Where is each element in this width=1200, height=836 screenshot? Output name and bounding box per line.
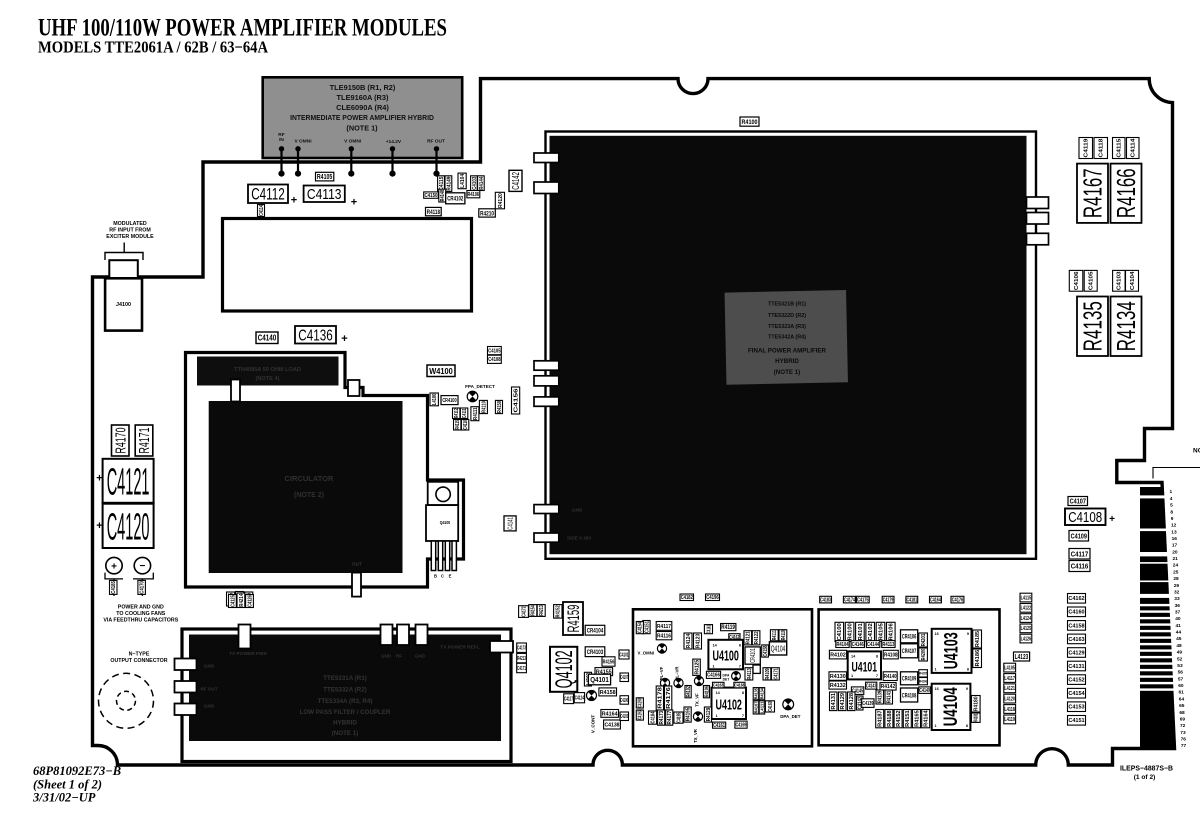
svg-text:C4116: C4116 — [1071, 562, 1089, 571]
svg-text:1: 1 — [851, 674, 853, 678]
svg-text:C4162: C4162 — [1068, 596, 1084, 602]
svg-text:RF: RF — [396, 654, 402, 659]
svg-text:(NOTE 1): (NOTE 1) — [332, 730, 358, 737]
svg-text:C4101: C4101 — [620, 652, 629, 658]
svg-text:C4193: C4193 — [638, 710, 644, 719]
svg-text:GND: GND — [415, 654, 426, 659]
svg-text:R4109: R4109 — [765, 668, 771, 679]
svg-text:C4114: C4114 — [259, 204, 265, 215]
svg-text:RF INPUT FROM: RF INPUT FROM — [109, 228, 151, 234]
svg-text:R4113: R4113 — [747, 668, 753, 679]
svg-text:C4142: C4142 — [511, 172, 522, 190]
svg-text:72: 72 — [1180, 723, 1186, 729]
svg-text:R4111: R4111 — [772, 630, 778, 640]
svg-text:C4119: C4119 — [1084, 139, 1090, 158]
svg-text:C4182: C4182 — [681, 595, 693, 601]
svg-text:R4178: R4178 — [658, 687, 664, 709]
svg-text:R4130: R4130 — [830, 674, 846, 680]
svg-text:R4166: R4166 — [1111, 168, 1141, 218]
svg-text:R4112: R4112 — [454, 408, 460, 418]
svg-text:R4170: R4170 — [113, 428, 129, 454]
svg-text:8: 8 — [739, 644, 741, 648]
svg-text:13: 13 — [1171, 529, 1177, 535]
svg-text:R4116: R4116 — [657, 634, 671, 640]
svg-text:R4195: R4195 — [686, 708, 692, 722]
svg-text:C4125: C4125 — [230, 595, 236, 607]
svg-text:R4150: R4150 — [497, 401, 503, 413]
svg-text:R4200: R4200 — [921, 649, 927, 661]
svg-text:POWER AND GND: POWER AND GND — [118, 604, 164, 610]
svg-text:+: + — [341, 333, 347, 345]
svg-text:VIA FEEDTHRU CAPACITORS: VIA FEEDTHRU CAPACITORS — [103, 618, 178, 624]
svg-text:C4179: C4179 — [883, 598, 894, 604]
svg-text:61: 61 — [1179, 690, 1185, 696]
svg-text:56: 56 — [1178, 670, 1184, 676]
svg-text:R4134: R4134 — [1111, 301, 1141, 351]
svg-text:Q4102: Q4102 — [551, 650, 578, 688]
svg-text:Q4104: Q4104 — [771, 643, 786, 653]
svg-text:C4185: C4185 — [111, 581, 117, 594]
svg-text:77: 77 — [1181, 743, 1187, 749]
svg-text:C4115: C4115 — [439, 177, 445, 191]
svg-text:R4188: R4188 — [887, 710, 893, 727]
svg-text:L4126: L4126 — [1021, 636, 1032, 642]
svg-text:L4118: L4118 — [1004, 707, 1015, 713]
svg-text:R4154: R4154 — [531, 605, 537, 616]
svg-text:MODULATED: MODULATED — [113, 221, 147, 227]
svg-text:C4103: C4103 — [472, 177, 478, 190]
svg-text:C4109: C4109 — [1071, 531, 1087, 540]
svg-text:R4100: R4100 — [742, 119, 758, 126]
svg-text:C4158: C4158 — [1068, 623, 1084, 629]
svg-text:1: 1 — [935, 668, 937, 672]
svg-text:R4105: R4105 — [317, 174, 332, 181]
svg-text:R4129: R4129 — [840, 693, 846, 710]
svg-text:L4104: L4104 — [460, 173, 466, 188]
svg-text:C4104: C4104 — [1130, 270, 1136, 290]
svg-text:R4131: R4131 — [831, 693, 837, 710]
svg-text:L4123: L4123 — [1015, 652, 1029, 661]
svg-text:V OMNI: V OMNI — [294, 138, 312, 144]
svg-text:R4142: R4142 — [881, 684, 896, 690]
svg-text:25: 25 — [1173, 569, 1179, 575]
svg-text:R4106: R4106 — [704, 686, 710, 697]
svg-text:DPA_DET: DPA_DET — [780, 714, 800, 719]
svg-text:C4108: C4108 — [488, 357, 500, 363]
svg-text:C4118: C4118 — [1099, 139, 1105, 158]
svg-text:+: + — [291, 195, 297, 207]
svg-text:L4111: L4111 — [760, 701, 766, 713]
svg-text:C4126: C4126 — [247, 595, 253, 607]
svg-text:TTE5332A (R2): TTE5332A (R2) — [323, 687, 366, 694]
svg-text:R4187: R4187 — [878, 710, 884, 727]
svg-text:L4100: L4100 — [432, 394, 438, 406]
svg-text:R4102: R4102 — [830, 653, 846, 659]
svg-text:R4121: R4121 — [746, 631, 752, 644]
svg-text:C4136: C4136 — [298, 327, 332, 344]
svg-text:CR4106: CR4106 — [902, 634, 917, 641]
svg-text:TLE9160A (R3): TLE9160A (R3) — [337, 93, 389, 102]
svg-text:FINAL POWER AMPLIFIER: FINAL POWER AMPLIFIER — [748, 348, 827, 355]
svg-text:R4132: R4132 — [830, 683, 846, 689]
svg-text:R4139: R4139 — [878, 691, 884, 704]
svg-text:ILEPS−4887S−B: ILEPS−4887S−B — [1120, 764, 1173, 773]
svg-text:16: 16 — [935, 687, 939, 691]
svg-text:C4117: C4117 — [1071, 549, 1089, 558]
svg-text:R4111: R4111 — [473, 407, 479, 420]
svg-text:C4196: C4196 — [706, 595, 719, 601]
svg-text:48: 48 — [1176, 643, 1182, 649]
svg-text:C4107: C4107 — [620, 675, 628, 681]
svg-text:TTE5342A (R4): TTE5342A (R4) — [768, 335, 806, 341]
svg-text:R4134: R4134 — [760, 688, 766, 699]
svg-text:C4140: C4140 — [258, 334, 277, 343]
svg-text:12: 12 — [1171, 523, 1177, 529]
svg-text:R4149: R4149 — [446, 177, 452, 191]
svg-text:R4122: R4122 — [754, 631, 760, 644]
svg-text:TTE5323A (R3): TTE5323A (R3) — [768, 324, 806, 330]
svg-text:8: 8 — [967, 668, 969, 672]
svg-text:1: 1 — [713, 665, 715, 669]
svg-text:R4118: R4118 — [427, 209, 440, 216]
svg-text:U4103: U4103 — [942, 632, 963, 669]
svg-text:+: + — [111, 561, 117, 572]
svg-text:R4158: R4158 — [600, 690, 616, 696]
svg-text:R4110: R4110 — [481, 401, 487, 413]
svg-text:R4123: R4123 — [695, 634, 701, 648]
svg-text:4: 4 — [1170, 496, 1173, 502]
svg-text:TLE9150B (R1, R2): TLE9150B (R1, R2) — [330, 83, 396, 92]
svg-text:+: + — [1109, 514, 1115, 525]
svg-text:R4124: R4124 — [686, 633, 692, 648]
svg-text:R4213: R4213 — [517, 656, 526, 662]
svg-text:TTN4085A 50 OHM LOAD: TTN4085A 50 OHM LOAD — [234, 367, 301, 373]
svg-text:(NOTE 2): (NOTE 2) — [294, 492, 324, 499]
svg-text:+: + — [96, 520, 102, 532]
svg-text:Q4101: Q4101 — [590, 677, 609, 684]
svg-text:C4107: C4107 — [1070, 499, 1086, 506]
svg-text:(1 of 2): (1 of 2) — [1134, 774, 1156, 781]
svg-text:R4106: R4106 — [468, 192, 480, 198]
svg-text:L4125: L4125 — [1021, 626, 1032, 632]
svg-text:LOW PASS FILTER / COUPLER: LOW PASS FILTER / COUPLER — [300, 709, 391, 716]
svg-text:NOTE: NOTE — [1193, 448, 1200, 455]
svg-text:8: 8 — [1170, 509, 1173, 515]
svg-text:R4164: R4164 — [602, 711, 619, 717]
svg-text:C4161: C4161 — [706, 625, 712, 633]
svg-text:R4101: R4101 — [858, 623, 864, 640]
svg-text:CR4109: CR4109 — [902, 676, 917, 683]
svg-text:R4185: R4185 — [975, 631, 981, 647]
svg-text:TTE5321B (R1): TTE5321B (R1) — [768, 302, 806, 308]
svg-text:EXCITER MODULE: EXCITER MODULE — [106, 234, 154, 240]
svg-text:V_OMNI: V_OMNI — [638, 651, 654, 656]
svg-text:8: 8 — [966, 724, 968, 728]
svg-text:C4168: C4168 — [734, 683, 744, 689]
svg-text:64: 64 — [1179, 696, 1185, 702]
svg-text:U4101: U4101 — [852, 659, 878, 675]
svg-text:8: 8 — [742, 691, 744, 695]
svg-text:GND: GND — [381, 654, 392, 659]
svg-text:C4160: C4160 — [768, 701, 774, 711]
svg-text:16: 16 — [935, 632, 939, 636]
svg-text:TX_VF: TX_VF — [695, 693, 700, 707]
svg-text:52: 52 — [1177, 656, 1183, 662]
svg-text:1: 1 — [935, 724, 937, 728]
svg-text:+: + — [96, 473, 102, 485]
svg-text:C4127: C4127 — [564, 697, 573, 703]
svg-text:V_CONT: V_CONT — [591, 715, 596, 734]
svg-text:1: 1 — [1170, 489, 1173, 495]
svg-text:HYBRID: HYBRID — [333, 720, 357, 727]
svg-text:73: 73 — [1180, 730, 1186, 736]
svg-text:C4115: C4115 — [1117, 139, 1123, 158]
svg-text:R4171: R4171 — [137, 428, 153, 454]
svg-text:CLE6090A (R4): CLE6090A (R4) — [336, 103, 389, 112]
svg-text:R4180: R4180 — [974, 696, 980, 711]
svg-text:Q4100: Q4100 — [440, 520, 451, 526]
svg-text:L4122: L4122 — [1021, 606, 1032, 612]
svg-text:5: 5 — [1170, 503, 1173, 509]
svg-text:R4176: R4176 — [666, 687, 672, 709]
svg-text:45: 45 — [1176, 636, 1182, 642]
svg-text:20: 20 — [1172, 549, 1178, 555]
svg-text:R4144: R4144 — [479, 176, 485, 190]
svg-text:C4120: C4120 — [107, 506, 150, 548]
svg-text:C4149: C4149 — [919, 688, 930, 694]
svg-text:C4160: C4160 — [1068, 610, 1084, 616]
svg-text:24: 24 — [1173, 563, 1179, 569]
svg-text:L4120: L4120 — [1004, 697, 1015, 703]
svg-text:C4172: C4172 — [521, 606, 527, 617]
svg-text:C4193: C4193 — [620, 714, 628, 720]
svg-text:57: 57 — [1178, 676, 1184, 682]
svg-text:28: 28 — [1173, 576, 1179, 582]
svg-text:41: 41 — [1176, 623, 1182, 629]
svg-text:W4100: W4100 — [429, 366, 453, 376]
svg-text:C4121: C4121 — [107, 461, 150, 503]
svg-text:C4124: C4124 — [575, 696, 585, 702]
svg-text:CR4102: CR4102 — [447, 196, 463, 203]
svg-text:53: 53 — [1177, 663, 1183, 669]
svg-text:68: 68 — [1179, 710, 1185, 716]
svg-text:C4100: C4100 — [837, 623, 843, 640]
svg-text:C4102: C4102 — [868, 623, 874, 640]
svg-text:C4151: C4151 — [1068, 718, 1084, 724]
svg-text:R4108: R4108 — [884, 653, 898, 659]
svg-text:(NOTE 4): (NOTE 4) — [256, 376, 280, 382]
svg-text:TTE5334A (R3, R4): TTE5334A (R3, R4) — [318, 698, 373, 705]
svg-text:R4120: R4120 — [498, 193, 504, 208]
svg-text:CIRCULATOR: CIRCULATOR — [285, 474, 334, 483]
svg-text:C4151: C4151 — [644, 621, 650, 633]
svg-text:IN: IN — [279, 137, 284, 143]
svg-text:R4151: R4151 — [905, 710, 911, 727]
svg-text:C4108: C4108 — [1068, 510, 1102, 526]
svg-text:E: E — [449, 574, 452, 579]
svg-text:DET: DET — [723, 678, 731, 682]
svg-text:C4176: C4176 — [952, 598, 964, 604]
svg-text:L4105: L4105 — [1004, 666, 1015, 672]
svg-text:R4173: R4173 — [659, 711, 665, 725]
svg-text:C4154: C4154 — [638, 621, 644, 633]
svg-text:R4129: R4129 — [706, 708, 712, 722]
svg-text:R4141: R4141 — [887, 691, 893, 704]
svg-text:L4119: L4119 — [1004, 717, 1015, 723]
svg-text:TTE5322D (R2): TTE5322D (R2) — [768, 313, 806, 319]
svg-text:60: 60 — [1178, 683, 1184, 689]
svg-text:37: 37 — [1175, 610, 1181, 616]
svg-text:33: 33 — [1174, 596, 1180, 602]
svg-text:69: 69 — [1180, 717, 1186, 723]
svg-text:9: 9 — [1171, 516, 1174, 522]
svg-text:C4129: C4129 — [1068, 650, 1084, 656]
svg-text:C4190: C4190 — [620, 698, 628, 704]
svg-text:CR4107: CR4107 — [902, 648, 917, 655]
svg-text:21: 21 — [1173, 556, 1179, 562]
svg-text:R4206: R4206 — [919, 679, 927, 684]
svg-text:N−TYPE: N−TYPE — [129, 652, 150, 658]
svg-text:65: 65 — [1179, 703, 1185, 709]
svg-text:R4128: R4128 — [849, 693, 855, 710]
svg-text:C4141: C4141 — [506, 517, 515, 530]
svg-text:R4205: R4205 — [919, 671, 927, 676]
svg-text:J4100: J4100 — [116, 302, 131, 308]
svg-text:C4110: C4110 — [463, 420, 469, 430]
svg-text:R4181: R4181 — [974, 713, 980, 722]
svg-text:C4161: C4161 — [713, 723, 725, 729]
svg-text:INTERMEDIATE POWER AMPLIFIER H: INTERMEDIATE POWER AMPLIFIER HYBRID — [290, 115, 434, 122]
svg-text:U4102: U4102 — [715, 696, 742, 713]
svg-text:TTE5331A (R1): TTE5331A (R1) — [323, 675, 366, 682]
svg-text:L4124: L4124 — [1021, 616, 1032, 622]
svg-text:+14.2V: +14.2V — [386, 139, 402, 145]
svg-text:7: 7 — [739, 665, 741, 669]
svg-text:GND: GND — [204, 664, 215, 669]
svg-text:C4150: C4150 — [424, 193, 437, 199]
svg-text:R4201: R4201 — [921, 634, 927, 647]
svg-text:R4117: R4117 — [657, 624, 671, 630]
svg-text:R4164: R4164 — [924, 709, 930, 726]
svg-text:1: 1 — [716, 714, 718, 718]
svg-text:C4131: C4131 — [1068, 664, 1084, 670]
svg-text:R4140: R4140 — [884, 674, 897, 680]
svg-text:68P81092E73−B: 68P81092E73−B — [33, 764, 121, 778]
svg-text:R4125: R4125 — [694, 660, 700, 675]
svg-text:3/31/02−UP: 3/31/02−UP — [32, 791, 96, 805]
svg-text:MODELS TTE2061A / 62B / 63−64A: MODELS TTE2061A / 62B / 63−64A — [38, 38, 268, 57]
svg-text:C4171: C4171 — [517, 666, 526, 672]
svg-text:C4185: C4185 — [676, 713, 682, 723]
svg-text:C4153: C4153 — [1068, 705, 1084, 711]
svg-text:RF OUT: RF OUT — [200, 687, 217, 692]
svg-text:40: 40 — [1175, 616, 1181, 622]
svg-text:GND: GND — [572, 508, 583, 513]
svg-text:C4164: C4164 — [930, 598, 941, 604]
svg-text:C4143: C4143 — [866, 684, 876, 690]
svg-text:CR4101: CR4101 — [750, 648, 757, 663]
svg-text:L4121: L4121 — [1004, 686, 1015, 692]
svg-text:OUTPUT CONNECTOR: OUTPUT CONNECTOR — [110, 658, 167, 664]
svg-text:V OMNI: V OMNI — [344, 139, 362, 145]
svg-text:R4110: R4110 — [781, 630, 787, 640]
svg-text:R4105: R4105 — [878, 623, 884, 640]
svg-text:C4158: C4158 — [763, 646, 769, 657]
svg-text:C4105: C4105 — [488, 349, 500, 355]
svg-text:17: 17 — [1172, 543, 1178, 549]
svg-text:TX POWER FWD: TX POWER FWD — [229, 651, 267, 657]
svg-text:C4152: C4152 — [1068, 678, 1084, 684]
svg-text:RF: RF — [278, 132, 284, 138]
svg-text:R4210: R4210 — [480, 210, 494, 217]
svg-text:9: 9 — [967, 632, 969, 636]
svg-text:C4146: C4146 — [852, 642, 864, 648]
svg-text:R4106: R4106 — [889, 623, 895, 640]
svg-text:R4213: R4213 — [539, 605, 545, 616]
svg-text:B: B — [434, 574, 437, 579]
svg-text:C4111: C4111 — [462, 408, 468, 418]
svg-text:C4112: C4112 — [251, 186, 285, 204]
svg-text:R4159: R4159 — [564, 605, 583, 633]
svg-text:SIDE A 28V: SIDE A 28V — [567, 536, 592, 541]
svg-text:C4173: C4173 — [517, 646, 526, 652]
svg-text:R4152: R4152 — [896, 710, 902, 727]
svg-text:C4169: C4169 — [736, 723, 747, 729]
svg-text:U4100: U4100 — [712, 647, 739, 664]
svg-text:R4152: R4152 — [556, 605, 562, 617]
svg-text:C4171: C4171 — [773, 668, 779, 679]
svg-text:R4115: R4115 — [455, 420, 461, 430]
svg-text:76: 76 — [1181, 737, 1187, 743]
svg-text:CR4104: CR4104 — [587, 627, 604, 634]
svg-text:C4184: C4184 — [650, 711, 656, 724]
svg-text:C4181: C4181 — [907, 598, 918, 604]
svg-text:RF OUT: RF OUT — [427, 139, 445, 145]
svg-text:R4135: R4135 — [1078, 301, 1108, 351]
svg-text:+: + — [351, 197, 357, 209]
svg-text:R4113: R4113 — [882, 642, 894, 648]
svg-text:C4174: C4174 — [844, 598, 856, 604]
svg-text:FPA_DETECT: FPA_DETECT — [465, 384, 495, 389]
svg-text:7: 7 — [742, 714, 744, 718]
svg-text:R4214: R4214 — [239, 593, 245, 607]
svg-text:C4114: C4114 — [1131, 137, 1137, 157]
svg-text:R4167: R4167 — [1078, 168, 1108, 218]
svg-text:C4156: C4156 — [514, 388, 520, 412]
svg-text:C4175: C4175 — [857, 598, 868, 604]
svg-text:C4154: C4154 — [1068, 691, 1085, 697]
svg-text:(Sheet 1 of 2): (Sheet 1 of 2) — [33, 778, 102, 792]
svg-text:HYBRID: HYBRID — [775, 358, 799, 365]
svg-text:TX POWER REFL: TX POWER REFL — [440, 645, 480, 651]
svg-text:7: 7 — [876, 674, 878, 678]
svg-text:C4103: C4103 — [1117, 271, 1123, 290]
svg-text:C4190: C4190 — [638, 698, 644, 707]
svg-text:C4105: C4105 — [1089, 271, 1095, 290]
svg-text:C4163: C4163 — [713, 683, 724, 689]
svg-text:R4102: R4102 — [686, 686, 692, 697]
svg-text:U4104: U4104 — [941, 687, 962, 726]
svg-text:C4138: C4138 — [604, 722, 619, 728]
svg-text:L4117: L4117 — [1004, 676, 1015, 682]
svg-text:9: 9 — [966, 687, 968, 691]
svg-text:R4177: R4177 — [667, 711, 673, 725]
svg-text:C4106: C4106 — [1074, 271, 1080, 290]
svg-text:R4119: R4119 — [721, 625, 735, 631]
svg-text:L4115: L4115 — [1021, 595, 1032, 601]
svg-text:GND: GND — [204, 704, 215, 709]
svg-text:OUT: OUT — [352, 562, 362, 567]
